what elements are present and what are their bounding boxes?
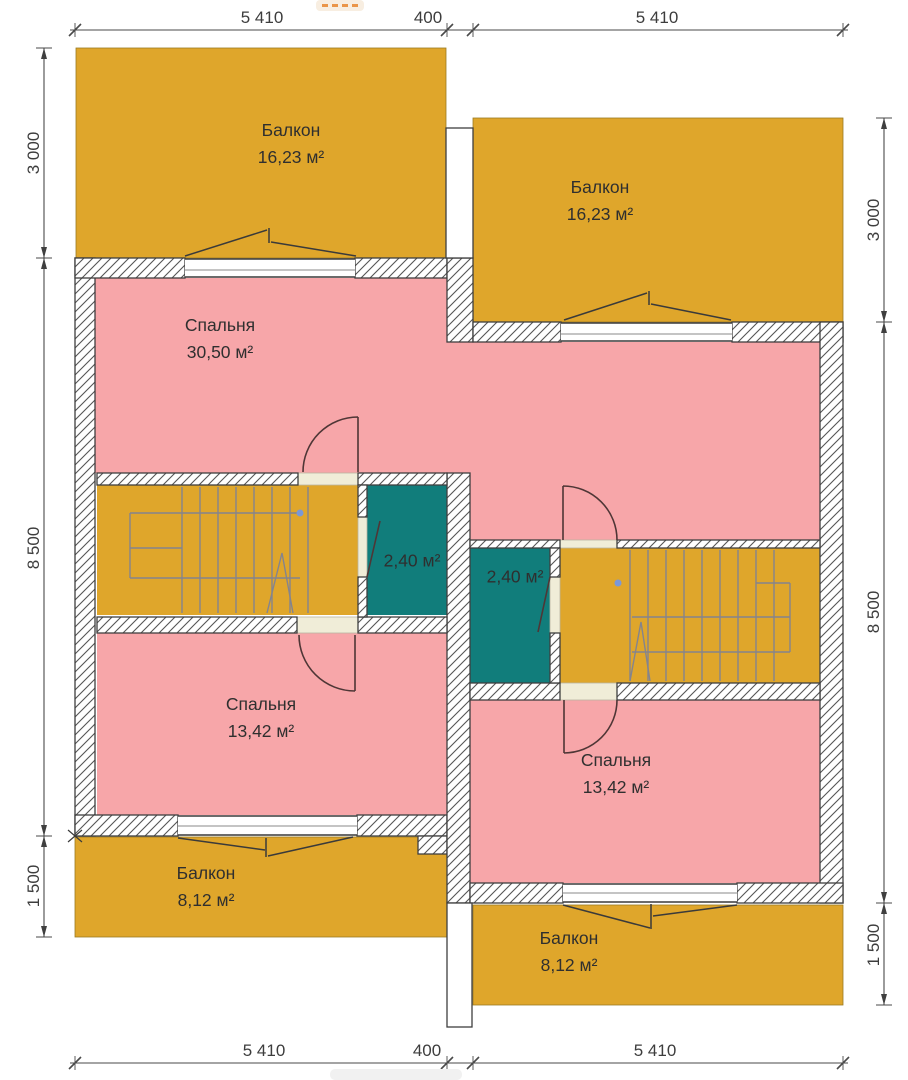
wall-closet-left-divider-top [358, 485, 367, 517]
dim-top-right: 5 410 [636, 8, 679, 28]
balcony-top-left-label: Балкон 16,23 м² [258, 117, 325, 171]
bedroom-bottom-left-label: Спальня 13,42 м² [226, 691, 296, 745]
room-name: Балкон [540, 925, 599, 952]
room-name: Балкон [567, 174, 634, 201]
wall-closet-right-divider-bottom [550, 633, 560, 683]
room-area: 13,42 м² [226, 718, 296, 745]
wall-below-closet-left [358, 617, 447, 633]
dim-bottom-left: 5 410 [243, 1041, 286, 1061]
dim-top-center: 400 [414, 8, 442, 28]
room-area: 30,50 м² [185, 339, 255, 366]
dim-top-left: 5 410 [241, 8, 284, 28]
dim-right-8500: 8 500 [864, 591, 884, 634]
dim-bottom-right: 5 410 [634, 1041, 677, 1061]
dim-right-3000: 3 000 [864, 199, 884, 242]
window-top-left [185, 259, 355, 277]
wall-closet-right-divider-top [550, 548, 560, 577]
wall-above-stair-right [617, 540, 820, 548]
wall-bottom-a-step [418, 836, 447, 854]
wall-below-stair-left [97, 617, 297, 633]
room-area: 2,40 м² [384, 548, 441, 575]
closet-right-label: 2,40 м² [487, 564, 544, 591]
balcony-bottom-right-label: Балкон 8,12 м² [540, 925, 599, 979]
wall-above-stair-left [97, 473, 298, 485]
room-area: 8,12 м² [177, 887, 236, 914]
wall-center-top-step [447, 258, 473, 342]
wall-exterior-left [75, 258, 95, 836]
wall-closet-left-divider-bottom [358, 577, 367, 617]
shaft-top [446, 128, 473, 258]
room-name: Спальня [581, 747, 651, 774]
room-name: Спальня [226, 691, 296, 718]
wall-top-a2 [355, 258, 447, 278]
room-name: Балкон [258, 117, 325, 144]
shaft-bottom [447, 903, 472, 1027]
floor-plan-canvas: Балкон 16,23 м² Балкон 16,23 м² Спальня … [0, 0, 908, 1080]
dim-left-3000: 3 000 [24, 132, 44, 175]
balcony-top-right-fill [473, 118, 843, 322]
floor-plan-drawing [0, 0, 908, 1080]
bedroom-top-label: Спальня 30,50 м² [185, 312, 255, 366]
room-area: 8,12 м² [540, 952, 599, 979]
dim-right-1500: 1 500 [864, 924, 884, 967]
balcony-bottom-left-fill [75, 837, 447, 937]
wall-bottom-b1 [470, 883, 563, 903]
window-bottom-left [178, 816, 357, 835]
wall-bottom-a1 [75, 815, 178, 836]
wall-above-closet-left [358, 473, 447, 485]
wall-above-closet-right [470, 540, 560, 548]
wall-bottom-a2 [357, 815, 447, 836]
wall-below-closet-right [470, 683, 560, 700]
stair-left-node [297, 510, 304, 517]
closet-left-label: 2,40 м² [384, 548, 441, 575]
wall-exterior-right [820, 322, 843, 903]
bedroom-bottom-right-label: Спальня 13,42 м² [581, 747, 651, 801]
dim-bottom-center: 400 [413, 1041, 441, 1061]
room-name: Балкон [177, 860, 236, 887]
balcony-top-right-label: Балкон 16,23 м² [567, 174, 634, 228]
window-bottom-right [563, 884, 737, 902]
wall-top-a1 [75, 258, 185, 278]
room-area: 16,23 м² [258, 144, 325, 171]
window-top-right [561, 323, 732, 341]
room-name: Спальня [185, 312, 255, 339]
wall-below-stair-right [617, 683, 820, 700]
wall-top-b1 [473, 322, 561, 342]
room-area: 16,23 м² [567, 201, 634, 228]
dim-left-8500: 8 500 [24, 527, 44, 570]
balcony-bottom-left-label: Балкон 8,12 м² [177, 860, 236, 914]
stair-left-fill [97, 485, 358, 615]
stair-right-node [615, 580, 622, 587]
room-area: 2,40 м² [487, 564, 544, 591]
watermark-bottom [330, 1069, 462, 1080]
watermark-top [316, 0, 364, 11]
dim-left-1500: 1 500 [24, 865, 44, 908]
stair-right-fill [560, 548, 820, 683]
room-area: 13,42 м² [581, 774, 651, 801]
wall-center-spine [447, 473, 470, 903]
wall-bottom-b2 [737, 883, 843, 903]
balcony-bottom-right-fill [473, 905, 843, 1005]
